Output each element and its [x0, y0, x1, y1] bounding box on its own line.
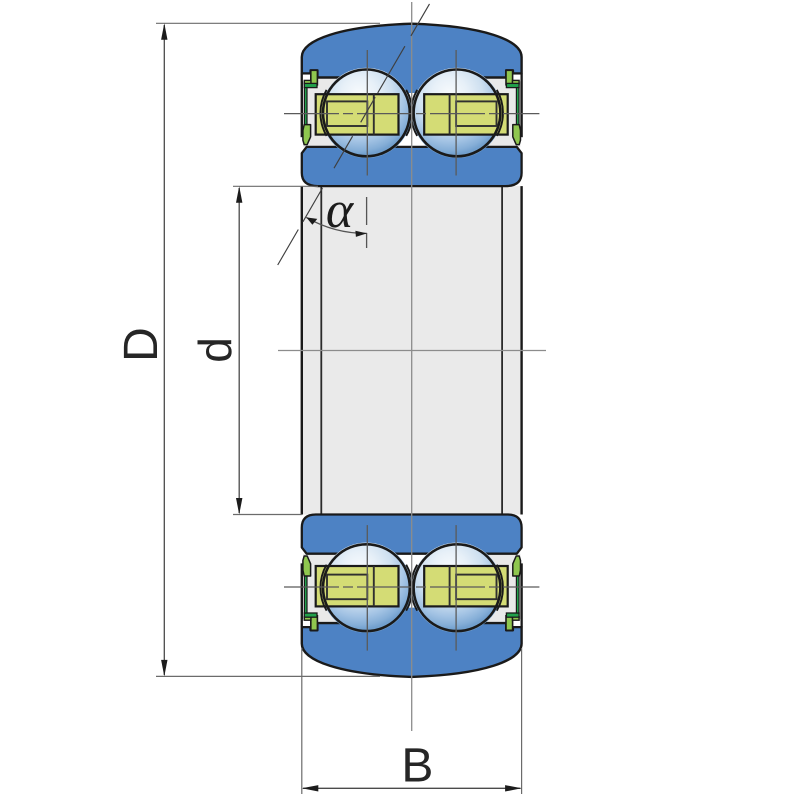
svg-text:D: D	[115, 327, 168, 362]
svg-text:α: α	[326, 182, 355, 239]
svg-text:d: d	[189, 337, 241, 363]
svg-text:B: B	[401, 740, 433, 793]
